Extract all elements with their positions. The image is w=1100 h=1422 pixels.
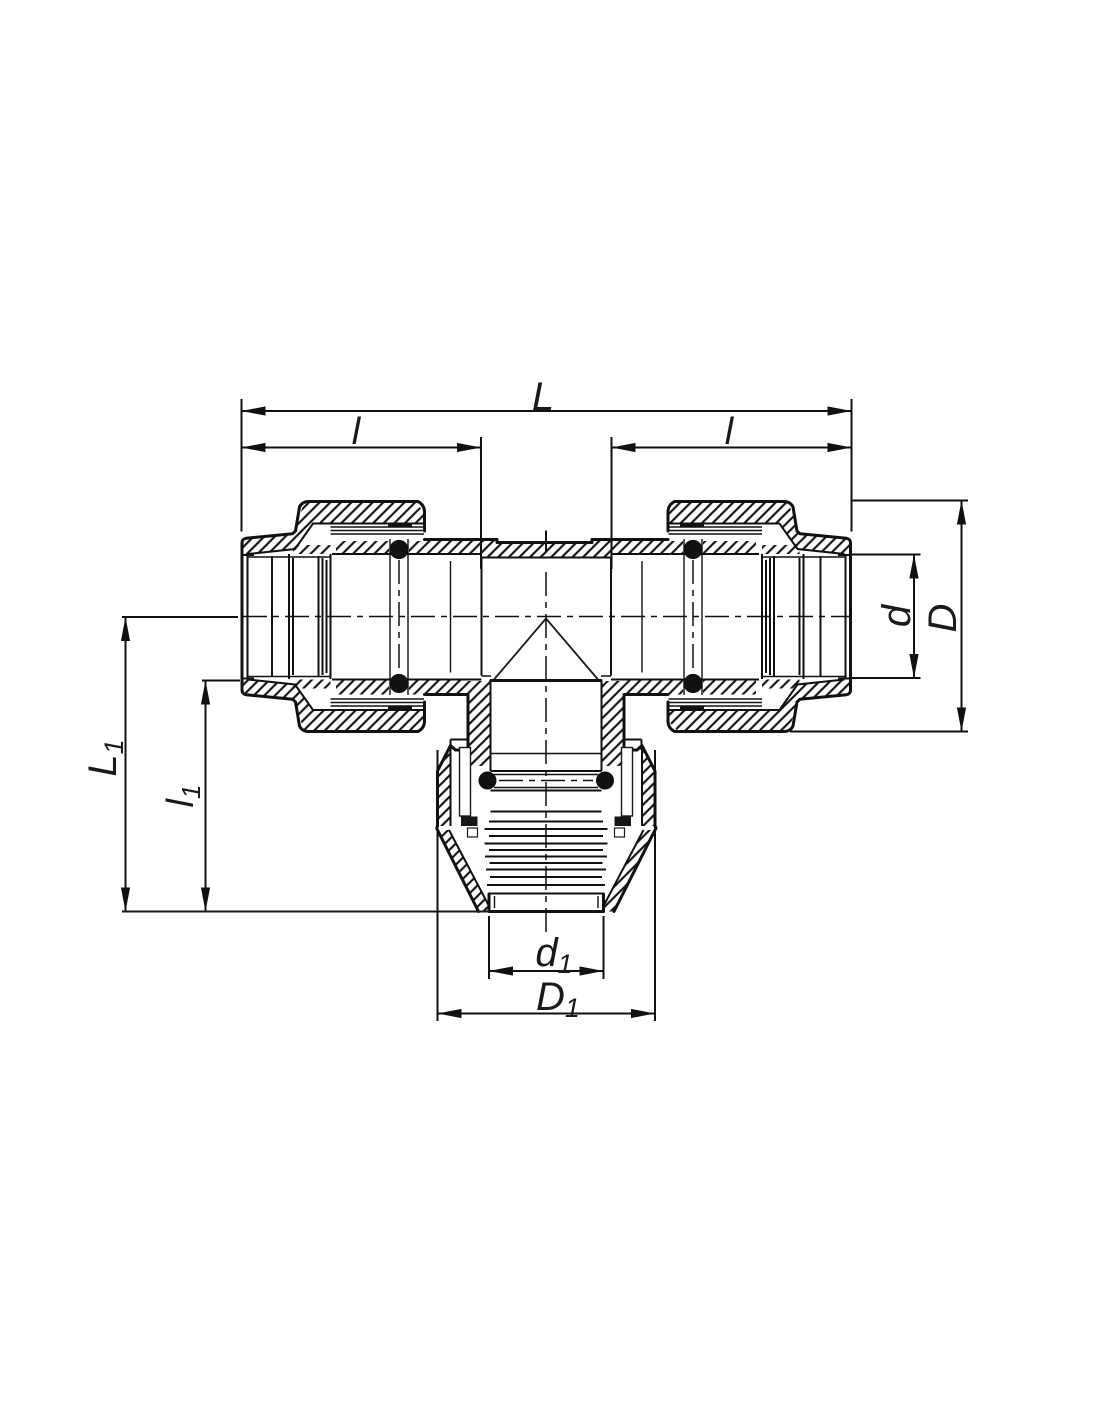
svg-text:D: D <box>921 604 965 633</box>
svg-text:L: L <box>532 375 554 419</box>
svg-text:d: d <box>875 603 919 627</box>
